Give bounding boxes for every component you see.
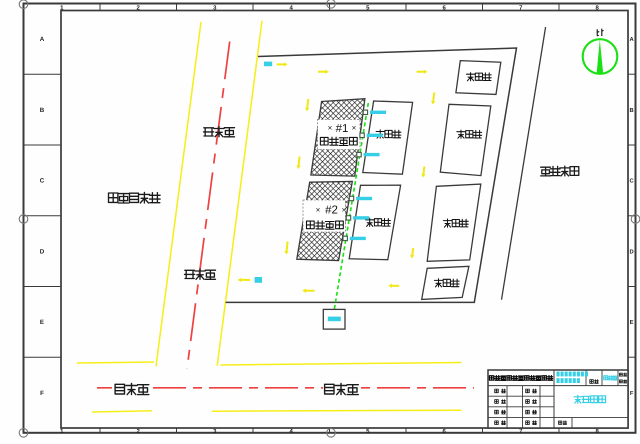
svg-text:#2: #2	[325, 205, 338, 217]
svg-text:×: ×	[316, 205, 321, 214]
svg-text:B: B	[40, 107, 45, 114]
svg-text:×: ×	[342, 205, 347, 214]
svg-text:B: B	[630, 108, 634, 114]
svg-text:D: D	[630, 249, 634, 255]
svg-text:D: D	[40, 248, 45, 255]
svg-text:A: A	[40, 36, 45, 43]
svg-text:×: ×	[328, 124, 333, 133]
svg-text:C: C	[40, 178, 45, 185]
svg-text:E: E	[40, 319, 44, 326]
svg-text:E: E	[630, 320, 634, 326]
svg-text:F: F	[40, 390, 44, 397]
svg-text:#1: #1	[336, 123, 349, 135]
svg-text:F: F	[630, 391, 634, 397]
svg-text:×: ×	[352, 124, 357, 133]
